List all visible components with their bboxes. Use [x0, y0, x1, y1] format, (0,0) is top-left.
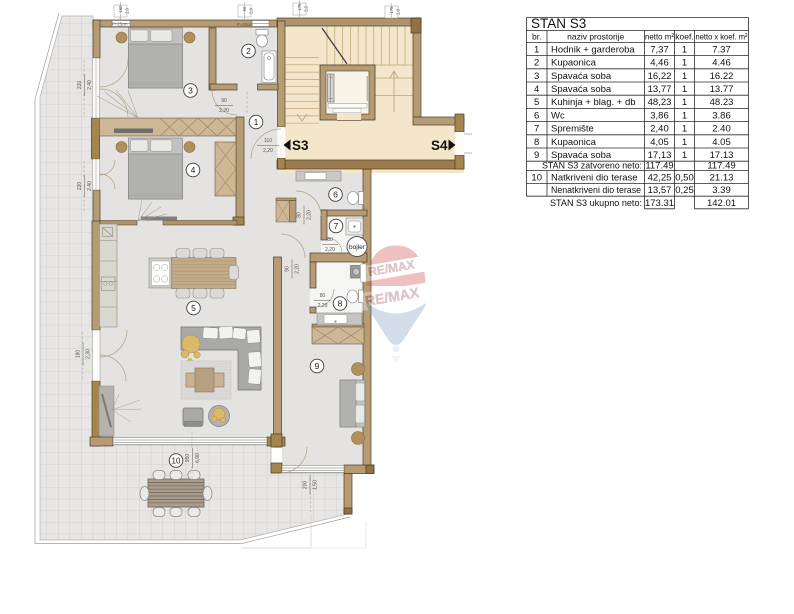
svg-text:7,37: 7,37 — [650, 44, 669, 55]
svg-text:1: 1 — [682, 137, 687, 148]
svg-text:2,20: 2,20 — [325, 247, 335, 253]
svg-text:1: 1 — [682, 84, 687, 95]
svg-text:bojler: bojler — [349, 244, 366, 251]
svg-text:4: 4 — [534, 84, 539, 95]
svg-text:13,57: 13,57 — [648, 185, 672, 196]
svg-text:4: 4 — [191, 165, 196, 175]
svg-text:Kuhinja + blag. + db: Kuhinja + blag. + db — [551, 97, 636, 108]
svg-text:S4: S4 — [431, 138, 448, 153]
svg-text:9: 9 — [315, 361, 320, 371]
svg-text:1: 1 — [534, 44, 539, 55]
svg-text:7: 7 — [334, 221, 339, 231]
svg-text:STAN S3: STAN S3 — [531, 16, 586, 31]
svg-text:160: 160 — [118, 5, 123, 13]
svg-text:Spavaća soba: Spavaća soba — [551, 71, 612, 82]
svg-text:200: 200 — [303, 481, 309, 490]
svg-text:br.: br. — [532, 32, 541, 42]
svg-text:175: 175 — [297, 3, 302, 11]
svg-text:2,20: 2,20 — [307, 210, 313, 220]
svg-text:13.77: 13.77 — [710, 84, 734, 95]
svg-text:Kupaonica: Kupaonica — [551, 58, 597, 69]
svg-text:koef.: koef. — [675, 32, 693, 42]
svg-text:2.40: 2.40 — [712, 124, 731, 135]
svg-text:2,0: 2,0 — [249, 7, 254, 13]
svg-text:2,0: 2,0 — [125, 7, 130, 13]
svg-text:4.46: 4.46 — [712, 58, 731, 69]
svg-text:5: 5 — [191, 303, 196, 313]
svg-text:9: 9 — [534, 150, 539, 161]
svg-text:2,20: 2,20 — [263, 148, 273, 154]
svg-text:1: 1 — [254, 117, 259, 127]
svg-text:4,46: 4,46 — [650, 58, 669, 69]
svg-text:STAN S3 zatvoreno neto:: STAN S3 zatvoreno neto: — [542, 161, 642, 172]
svg-text:2,40: 2,40 — [87, 181, 93, 191]
svg-text:3: 3 — [188, 86, 193, 96]
svg-text:42,25: 42,25 — [648, 172, 672, 183]
svg-text:naziv prostorije: naziv prostorije — [567, 32, 624, 42]
svg-text:950: 950 — [185, 454, 191, 463]
svg-text:2,20: 2,20 — [219, 108, 229, 114]
svg-text:Nenatkriveni dio terase: Nenatkriveni dio terase — [551, 185, 641, 196]
svg-text:Spavaća soba: Spavaća soba — [551, 84, 612, 95]
svg-text:4.05: 4.05 — [712, 137, 731, 148]
svg-text:6: 6 — [534, 110, 539, 121]
svg-text:220: 220 — [77, 81, 83, 90]
svg-text:6,90: 6,90 — [195, 453, 201, 463]
svg-text:Wc: Wc — [551, 110, 565, 121]
svg-text:Spavaća soba: Spavaća soba — [551, 150, 612, 161]
svg-text:1: 1 — [682, 71, 687, 82]
svg-text:0,50: 0,50 — [675, 172, 694, 183]
svg-text:1: 1 — [682, 97, 687, 108]
svg-text:142.01: 142.01 — [707, 198, 736, 209]
svg-text:2,0: 2,0 — [396, 8, 401, 14]
svg-text:2,0: 2,0 — [304, 5, 309, 11]
svg-text:3,86: 3,86 — [650, 110, 669, 121]
svg-text:2,40: 2,40 — [87, 80, 93, 90]
svg-text:3.86: 3.86 — [712, 110, 731, 121]
svg-text:7.37: 7.37 — [712, 44, 731, 55]
svg-text:2,20: 2,20 — [318, 303, 328, 309]
svg-text:6: 6 — [333, 190, 338, 200]
svg-text:16,22: 16,22 — [648, 71, 672, 82]
svg-text:3: 3 — [534, 71, 539, 82]
svg-text:21.13: 21.13 — [710, 172, 734, 183]
svg-text:2,20: 2,20 — [295, 264, 301, 274]
svg-text:48,23: 48,23 — [648, 97, 672, 108]
svg-text:173.31: 173.31 — [645, 198, 674, 209]
svg-text:80: 80 — [297, 212, 303, 218]
svg-text:P=25cm: P=25cm — [237, 22, 253, 27]
svg-text:80: 80 — [320, 293, 326, 299]
svg-text:netto x koef. m²: netto x koef. m² — [696, 32, 748, 42]
svg-text:2: 2 — [534, 58, 539, 69]
svg-text:Natkriveni dio terase: Natkriveni dio terase — [551, 172, 638, 183]
svg-text:175: 175 — [389, 6, 394, 14]
svg-text:13,77: 13,77 — [648, 84, 672, 95]
svg-text:60: 60 — [242, 6, 247, 11]
svg-text:Spremište: Spremište — [551, 124, 594, 135]
svg-text:180: 180 — [76, 350, 82, 359]
svg-text:1: 1 — [682, 124, 687, 135]
svg-text:1,50: 1,50 — [313, 480, 319, 490]
svg-text:Kupaonica: Kupaonica — [551, 137, 597, 148]
svg-text:S3: S3 — [292, 138, 309, 153]
svg-text:17,13: 17,13 — [648, 150, 672, 161]
svg-text:7: 7 — [534, 124, 539, 135]
svg-text:4,05: 4,05 — [650, 137, 669, 148]
svg-text:1: 1 — [682, 150, 687, 161]
svg-text:17.13: 17.13 — [710, 150, 734, 161]
svg-text:90: 90 — [285, 266, 291, 272]
svg-text:netto m²: netto m² — [645, 32, 674, 42]
svg-text:2: 2 — [246, 46, 251, 56]
svg-text:16.22: 16.22 — [710, 71, 734, 82]
svg-text:220: 220 — [77, 182, 83, 191]
svg-text:10: 10 — [531, 172, 542, 183]
svg-text:3.39: 3.39 — [712, 185, 731, 196]
svg-text:8: 8 — [534, 137, 539, 148]
svg-text:10: 10 — [172, 457, 181, 466]
svg-text:117.49: 117.49 — [645, 161, 673, 172]
svg-text:1: 1 — [682, 58, 687, 69]
svg-text:5: 5 — [534, 97, 539, 108]
svg-text:2,40: 2,40 — [650, 124, 669, 135]
svg-text:90: 90 — [221, 98, 227, 104]
svg-text:110: 110 — [264, 138, 272, 144]
svg-text:80: 80 — [327, 237, 333, 243]
svg-text:2,30: 2,30 — [86, 349, 92, 359]
svg-text:48.23: 48.23 — [710, 97, 734, 108]
svg-text:1: 1 — [682, 110, 687, 121]
svg-text:8: 8 — [338, 299, 343, 309]
svg-text:0,25: 0,25 — [675, 185, 694, 196]
svg-text:117.49: 117.49 — [707, 161, 735, 172]
svg-text:1: 1 — [682, 44, 687, 55]
svg-text:STAN S3 ukupno neto:: STAN S3 ukupno neto: — [550, 198, 642, 209]
svg-text:P=25cm: P=25cm — [112, 22, 128, 27]
svg-text:Hodnik + garderoba: Hodnik + garderoba — [551, 44, 635, 55]
